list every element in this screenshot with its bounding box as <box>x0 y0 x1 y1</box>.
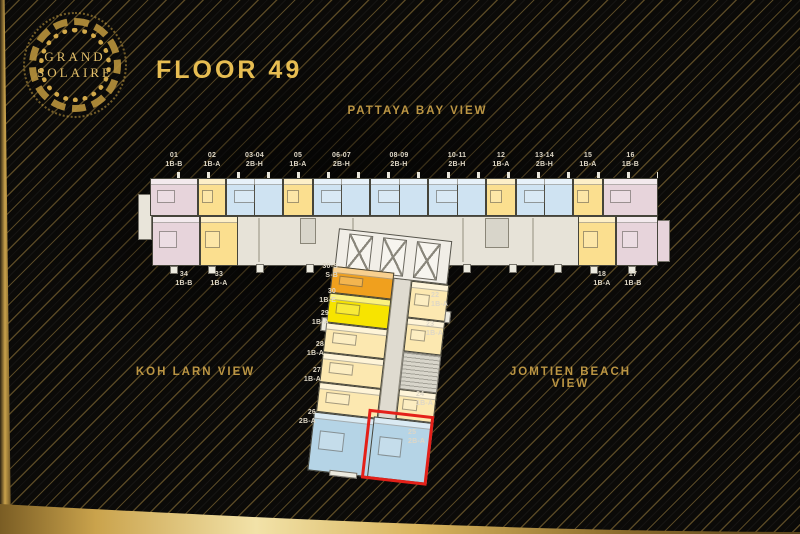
unit-10-11[interactable] <box>428 178 486 216</box>
unit-label-17: 171B-B <box>611 270 655 288</box>
unit-label-13-14: 13-142B-H <box>516 151 573 176</box>
unit-label-30: 301B-E <box>290 287 336 305</box>
grand-solaire-logo: GRAND SOLAIRE <box>27 16 123 114</box>
unit-label-28: 281B-A <box>278 340 324 358</box>
gold-ribbon-bottom <box>0 500 800 534</box>
stairwell <box>485 218 509 248</box>
view-label-koh-larn: KOH LARN VIEW <box>128 366 263 378</box>
unit-06-07[interactable] <box>313 178 370 216</box>
unit-label-27: 271B-A <box>275 366 321 384</box>
unit-label-03-04: 03-042B-H <box>226 151 283 176</box>
service-stair-block <box>399 351 441 393</box>
corridor-ledge <box>256 264 264 273</box>
unit-label-08-09: 08-092B-H <box>370 151 428 176</box>
east-end-cap <box>656 220 670 262</box>
corridor-ledge <box>554 264 562 273</box>
view-label-jomtien-beach: JOMTIEN BEACH VIEW <box>498 366 643 390</box>
unit-02[interactable] <box>198 178 226 216</box>
view-label-pattaya-bay: PATTAYA BAY VIEW <box>310 105 525 117</box>
unit-03-04[interactable] <box>226 178 283 216</box>
unit-label-02: 021B-A <box>198 151 226 176</box>
elevator-shaft-icon <box>413 241 441 280</box>
corridor-divider <box>258 218 260 262</box>
unit-label-25: 252B-A <box>408 428 454 446</box>
unit-15[interactable] <box>573 178 603 216</box>
unit-label-10-11: 10-112B-H <box>428 151 486 176</box>
unit-label-24: 241B-A <box>416 390 462 408</box>
unit-label-22: 221B-A <box>431 291 477 309</box>
unit-label-29: 291B-A <box>283 309 329 327</box>
unit-label-01: 011B-B <box>150 151 198 176</box>
stairwell <box>300 218 316 244</box>
corridor-ledge <box>463 264 471 273</box>
floor-plan-page: GRAND SOLAIRE FLOOR 49 PATTAYA BAY VIEW … <box>0 0 800 534</box>
bar-top-units <box>150 178 658 216</box>
unit-label-33: 331B-A <box>197 270 241 288</box>
unit-16[interactable] <box>603 178 658 216</box>
unit-17[interactable] <box>616 216 658 266</box>
corridor-divider <box>532 218 534 262</box>
highlighted-unit-25-outline[interactable] <box>361 409 434 486</box>
unit-label-16: 161B-B <box>603 151 658 176</box>
corridor-divider <box>462 218 464 262</box>
unit-label-23: 231B-A <box>426 320 472 338</box>
unit-label-05: 051B-A <box>283 151 313 176</box>
unit-label-26: 262B-A <box>270 408 316 426</box>
logo-text-solaire: SOLAIRE <box>37 65 113 81</box>
bar-top-labels: 011B-B 021B-A 03-042B-H 051B-A 06-072B-H… <box>150 151 658 176</box>
unit-08-09[interactable] <box>370 178 428 216</box>
unit-12[interactable] <box>486 178 516 216</box>
unit-34[interactable] <box>152 216 200 266</box>
unit-33[interactable] <box>200 216 238 266</box>
logo-text-grand: GRAND <box>44 49 105 65</box>
unit-13-14[interactable] <box>516 178 573 216</box>
unit-05[interactable] <box>283 178 313 216</box>
page-title: FLOOR 49 <box>156 56 302 85</box>
unit-01[interactable] <box>150 178 198 216</box>
corridor-ledge <box>509 264 517 273</box>
unit-label-30S: 30-SS-B <box>292 262 338 280</box>
unit-label-15: 151B-A <box>573 151 603 176</box>
gold-edge-left <box>0 0 11 534</box>
unit-label-06-07: 06-072B-H <box>313 151 370 176</box>
unit-18[interactable] <box>578 216 616 266</box>
unit-label-12: 121B-A <box>486 151 516 176</box>
